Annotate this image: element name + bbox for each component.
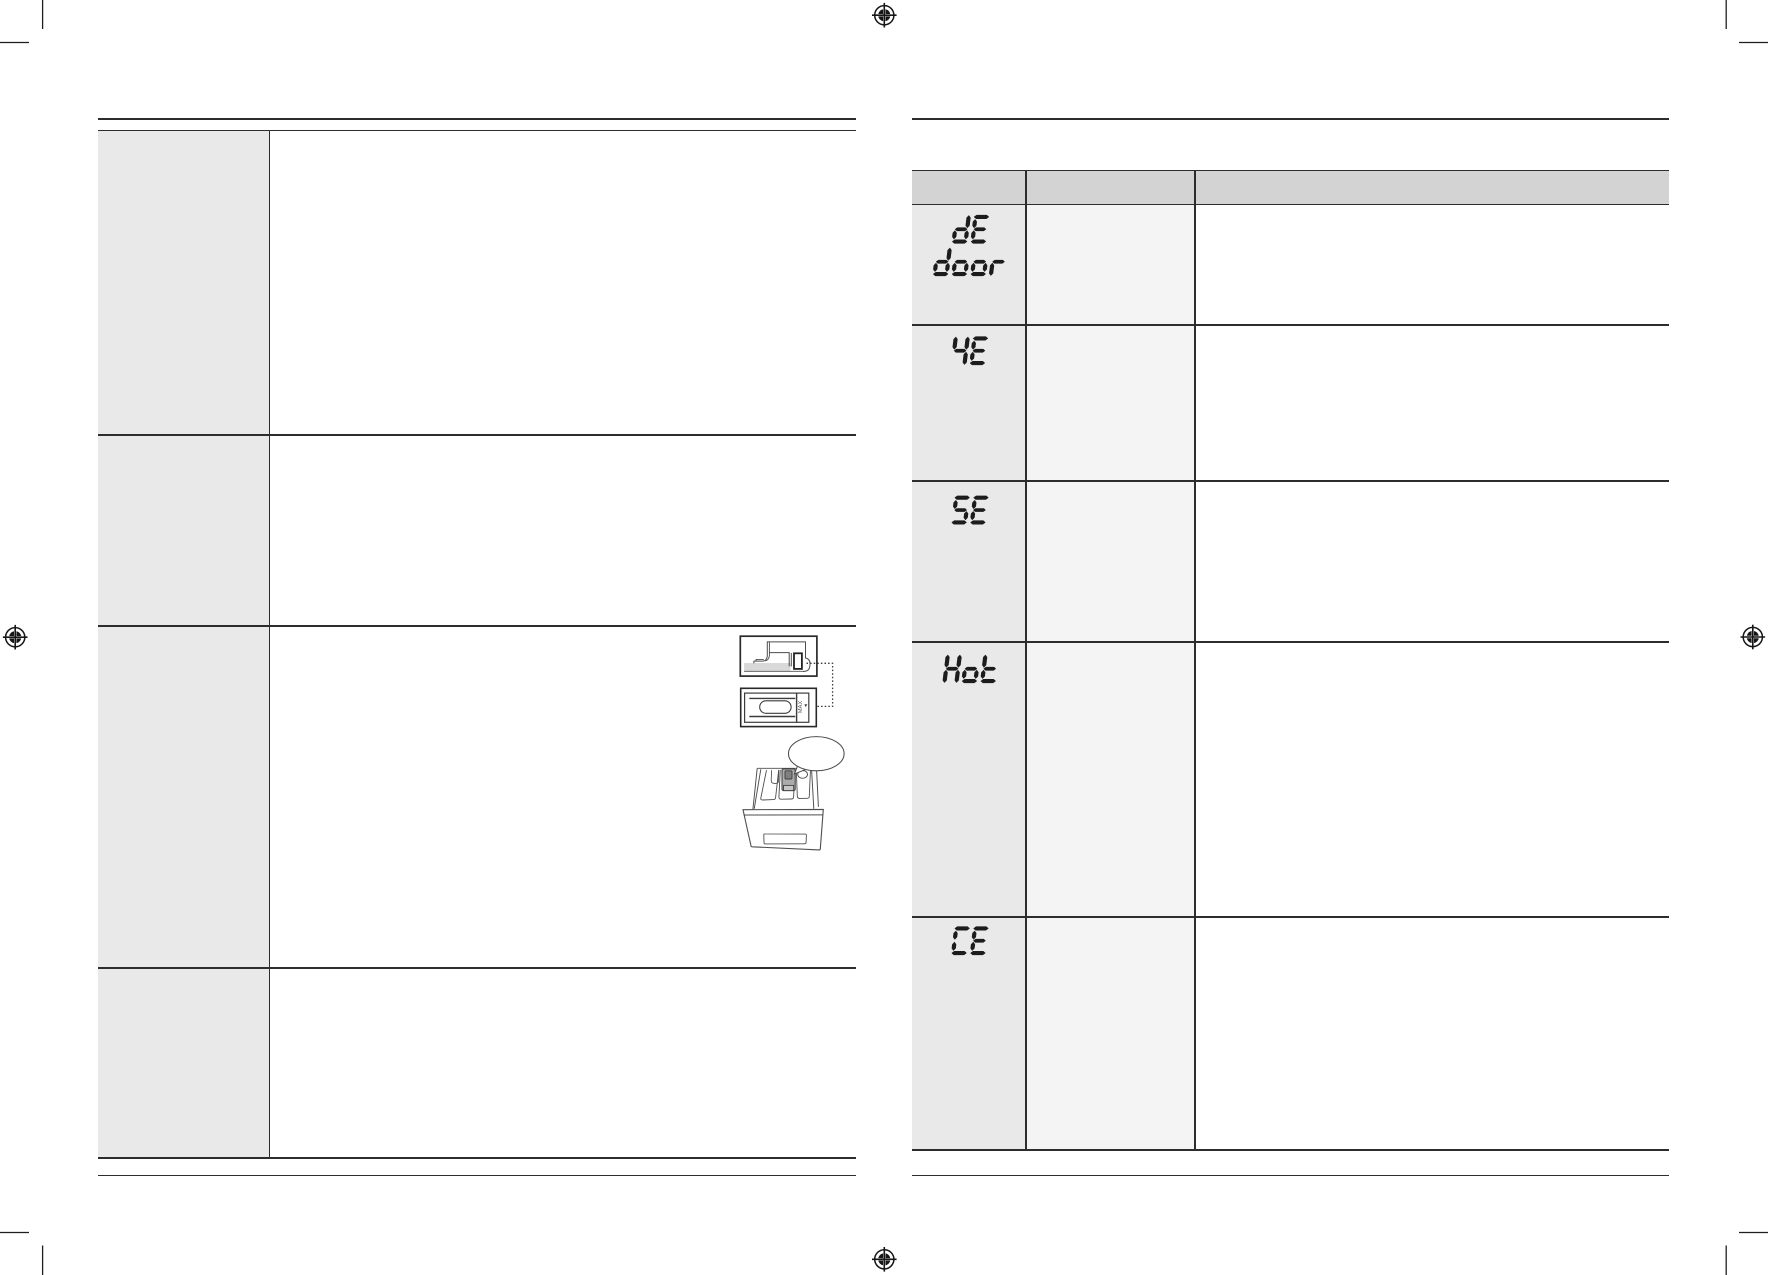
svg-text:MAX: MAX — [798, 701, 804, 714]
